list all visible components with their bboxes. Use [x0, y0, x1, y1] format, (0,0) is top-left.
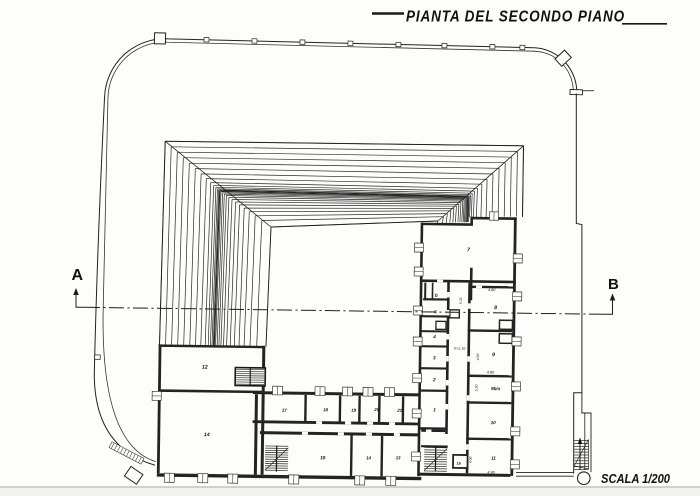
svg-text:8: 8	[494, 305, 497, 311]
svg-text:17: 17	[282, 408, 288, 413]
svg-text:2: 2	[432, 377, 436, 382]
svg-text:14: 14	[204, 432, 210, 438]
svg-text:20: 20	[373, 407, 380, 412]
svg-text:10: 10	[491, 420, 497, 425]
svg-text:19: 19	[351, 408, 357, 413]
svg-text:1b: 1b	[456, 462, 461, 466]
svg-text:b: b	[435, 293, 438, 298]
svg-text:A: A	[72, 267, 84, 284]
svg-text:5.20: 5.20	[475, 384, 479, 391]
svg-text:4.80: 4.80	[487, 371, 495, 375]
svg-text:4.00: 4.00	[469, 456, 473, 463]
svg-text:4.60: 4.60	[476, 353, 480, 360]
svg-text:18: 18	[323, 407, 329, 412]
svg-text:9bis: 9bis	[491, 386, 501, 391]
svg-text:PIANTA DEL SECONDO PIANO: PIANTA DEL SECONDO PIANO	[406, 9, 625, 26]
svg-text:4.80: 4.80	[488, 288, 496, 292]
svg-text:21: 21	[396, 408, 403, 413]
svg-text:4.90: 4.90	[487, 471, 495, 475]
svg-text:12: 12	[202, 365, 208, 371]
svg-text:5.31: 5.31	[459, 297, 463, 304]
svg-text:B: B	[608, 276, 619, 293]
svg-text:11: 11	[491, 456, 496, 461]
svg-text:9: 9	[492, 352, 495, 358]
svg-text:h=2.10: h=2.10	[454, 347, 465, 351]
svg-text:15: 15	[320, 455, 326, 461]
svg-text:14: 14	[366, 455, 372, 460]
svg-text:4: 4	[432, 334, 436, 339]
svg-text:SCALA 1/200: SCALA 1/200	[601, 472, 670, 486]
svg-text:13: 13	[396, 455, 402, 460]
